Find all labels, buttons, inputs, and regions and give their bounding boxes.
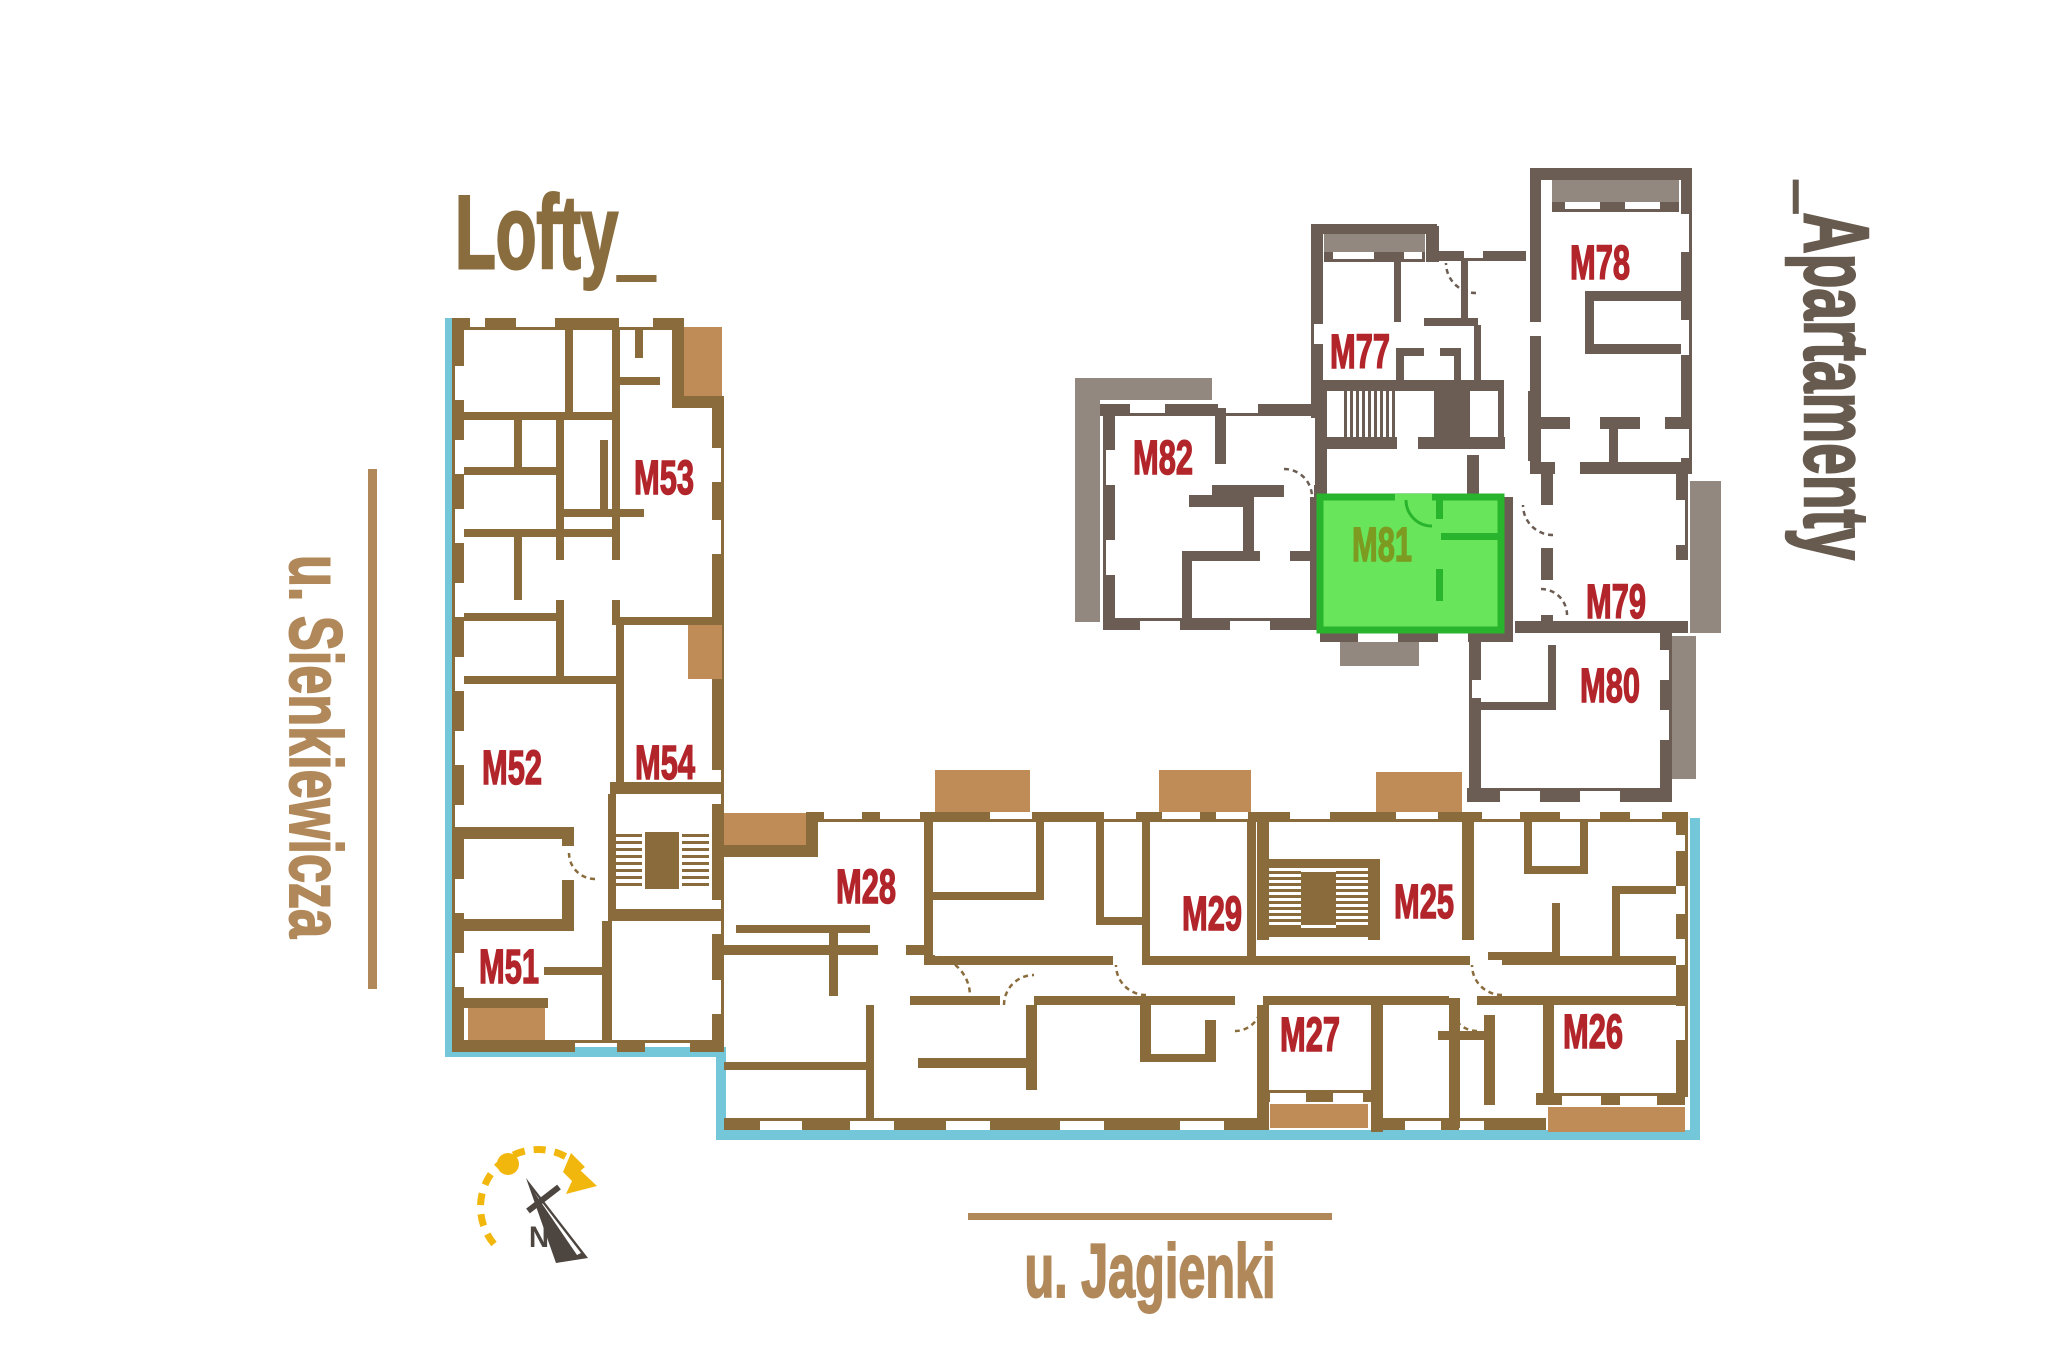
svg-text:M27: M27: [1280, 1009, 1340, 1062]
svg-text:N: N: [529, 1221, 549, 1254]
svg-text:u. Jagienki: u. Jagienki: [1025, 1229, 1276, 1314]
svg-text:u. Sienkiewicza: u. Sienkiewicza: [274, 555, 357, 939]
svg-text:M25: M25: [1394, 876, 1454, 929]
svg-text:M53: M53: [634, 452, 694, 505]
svg-text:M79: M79: [1586, 576, 1646, 629]
svg-text:M28: M28: [836, 861, 896, 914]
svg-text:M77: M77: [1330, 326, 1390, 379]
svg-text:M29: M29: [1182, 888, 1242, 941]
svg-text:M81: M81: [1352, 519, 1412, 572]
svg-text:M26: M26: [1563, 1006, 1623, 1059]
svg-text:M51: M51: [479, 941, 539, 994]
svg-text:Lofty_: Lofty_: [455, 175, 656, 291]
svg-text:M54: M54: [635, 737, 695, 790]
svg-text:M82: M82: [1133, 432, 1193, 485]
svg-text:_Apartamenty: _Apartamenty: [1785, 180, 1887, 560]
svg-text:M80: M80: [1580, 660, 1640, 713]
svg-text:M78: M78: [1570, 237, 1630, 290]
svg-text:M52: M52: [482, 742, 542, 795]
